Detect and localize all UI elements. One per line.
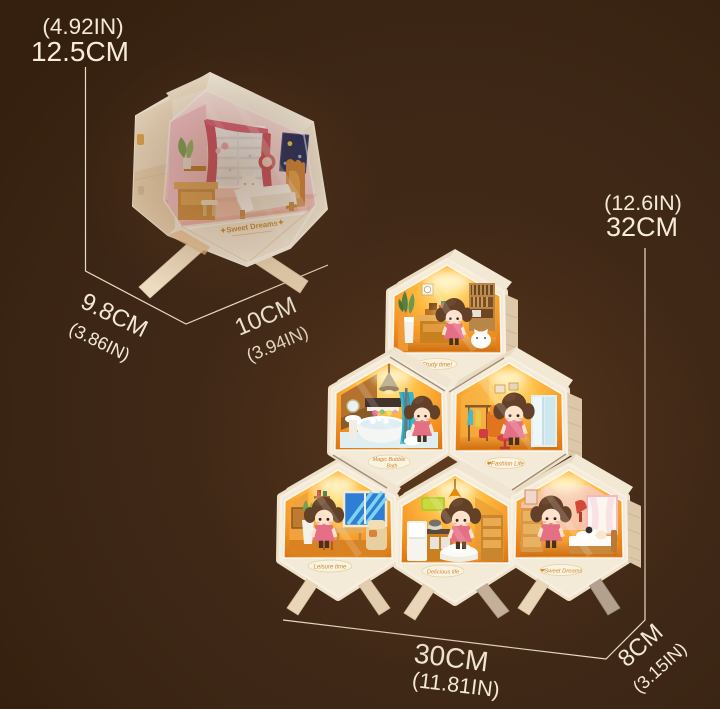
- svg-text:32CM: 32CM: [606, 212, 678, 242]
- svg-text:Leisure time: Leisure time: [314, 565, 347, 571]
- svg-text:❤Fashion Life: ❤Fashion Life: [486, 462, 524, 468]
- svg-text:Magic Bubble: Magic Bubble: [373, 457, 406, 463]
- svg-text:Bath: Bath: [386, 464, 397, 470]
- svg-text:❤Sweet Dreams: ❤Sweet Dreams: [540, 569, 583, 575]
- svg-text:Delicious life: Delicious life: [427, 570, 460, 576]
- svg-text:12.5CM: 12.5CM: [31, 36, 129, 67]
